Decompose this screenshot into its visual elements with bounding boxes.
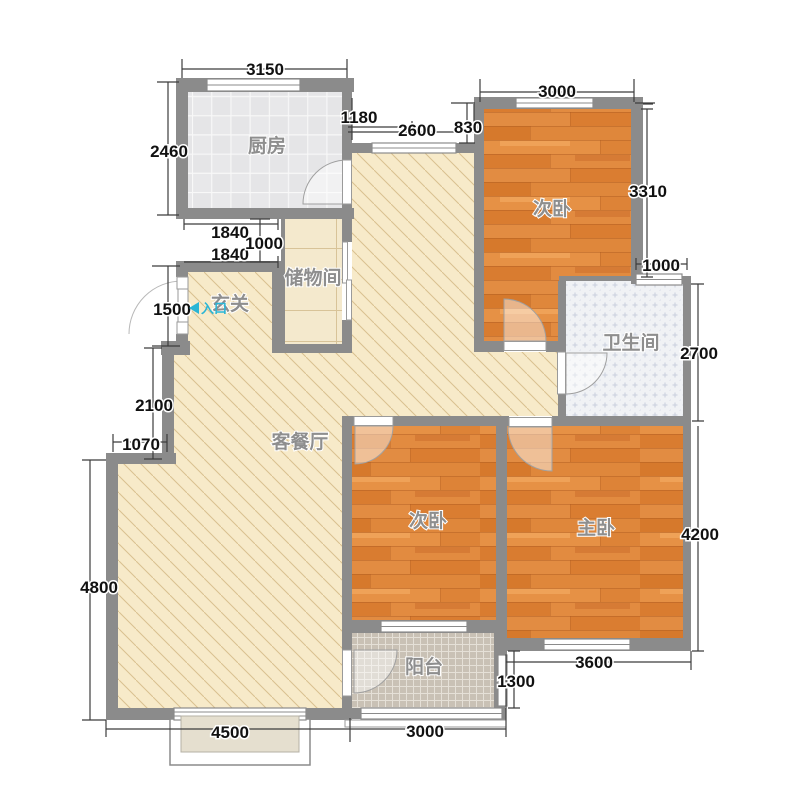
svg-text:3600: 3600 — [575, 653, 613, 672]
svg-text:2700: 2700 — [680, 344, 718, 363]
svg-text:1180: 1180 — [341, 108, 378, 127]
svg-text:4800: 4800 — [80, 578, 118, 597]
svg-text:储物间: 储物间 — [284, 266, 341, 289]
svg-text:次卧: 次卧 — [533, 197, 571, 220]
svg-text:2460: 2460 — [150, 142, 188, 161]
svg-text:厨房: 厨房 — [248, 134, 286, 157]
svg-text:1300: 1300 — [497, 672, 535, 691]
svg-text:1000: 1000 — [642, 256, 680, 275]
svg-text:3000: 3000 — [406, 722, 444, 741]
svg-text:主卧: 主卧 — [577, 517, 615, 539]
svg-text:1000: 1000 — [245, 234, 283, 253]
svg-text:1070: 1070 — [122, 435, 160, 454]
svg-text:4200: 4200 — [681, 525, 719, 544]
svg-text:卫生间: 卫生间 — [602, 331, 659, 354]
svg-text:1840: 1840 — [211, 245, 249, 264]
svg-text:阳台: 阳台 — [405, 655, 443, 678]
svg-text:1840: 1840 — [211, 223, 249, 242]
svg-text:入口: 入口 — [201, 301, 227, 316]
svg-text:3000: 3000 — [538, 82, 576, 101]
svg-text:4500: 4500 — [211, 723, 249, 742]
svg-text:3150: 3150 — [246, 60, 284, 79]
svg-text:客餐厅: 客餐厅 — [271, 430, 328, 453]
svg-text:次卧: 次卧 — [409, 509, 447, 532]
svg-text:2100: 2100 — [135, 396, 173, 415]
svg-text:3310: 3310 — [629, 182, 667, 201]
svg-text:1500: 1500 — [153, 300, 191, 319]
svg-text:830: 830 — [454, 118, 482, 137]
svg-text:2600: 2600 — [398, 121, 436, 140]
